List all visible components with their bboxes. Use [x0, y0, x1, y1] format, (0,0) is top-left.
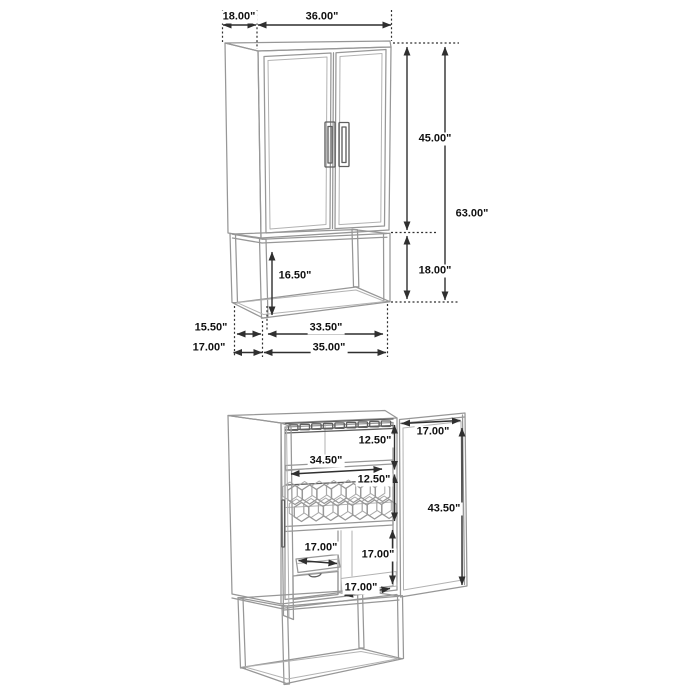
dim-label-upper-height: 45.00" [417, 133, 454, 146]
furniture-dimension-diagram: 18.00" 36.00" 45.00" 63.00" 16.50" 18.00… [0, 0, 700, 700]
door-handles [325, 122, 349, 167]
cabinet-left-side [228, 416, 281, 605]
dim-label-lower-shelf-depth: 17.00" [343, 582, 380, 595]
dim-label-wine-rack-height: 12.50" [356, 474, 393, 487]
left-door [264, 53, 331, 233]
dim-label-base-opening: 16.50" [277, 270, 314, 283]
dim-label-base-depth-overall: 17.00" [191, 342, 228, 355]
technical-drawing-canvas [0, 0, 700, 700]
dim-label-door-height: 43.50" [426, 503, 463, 516]
dim-label-base-width-overall: 35.00" [311, 342, 348, 355]
cabinet-left-side [225, 43, 261, 238]
dim-label-overall-height: 63.00" [454, 208, 491, 221]
dim-label-shelf-width: 34.50" [308, 455, 345, 468]
open-left-door [281, 423, 294, 620]
interior-shelf [285, 521, 393, 532]
dim-label-top-width: 36.00" [304, 11, 341, 24]
dim-label-compartment-height: 17.00" [360, 549, 397, 562]
dim-label-tray-width: 17.00" [303, 542, 340, 555]
dim-label-stemware-height: 12.50" [357, 435, 394, 448]
dim-label-base-width-inner: 33.50" [308, 322, 345, 335]
dim-label-base-height: 18.00" [417, 265, 454, 278]
open-cabinet-drawing [228, 411, 467, 685]
dim-label-top-depth: 18.00" [221, 11, 258, 24]
dim-label-door-width: 17.00" [415, 426, 452, 439]
dim-label-base-depth-inner: 15.50" [193, 322, 230, 335]
